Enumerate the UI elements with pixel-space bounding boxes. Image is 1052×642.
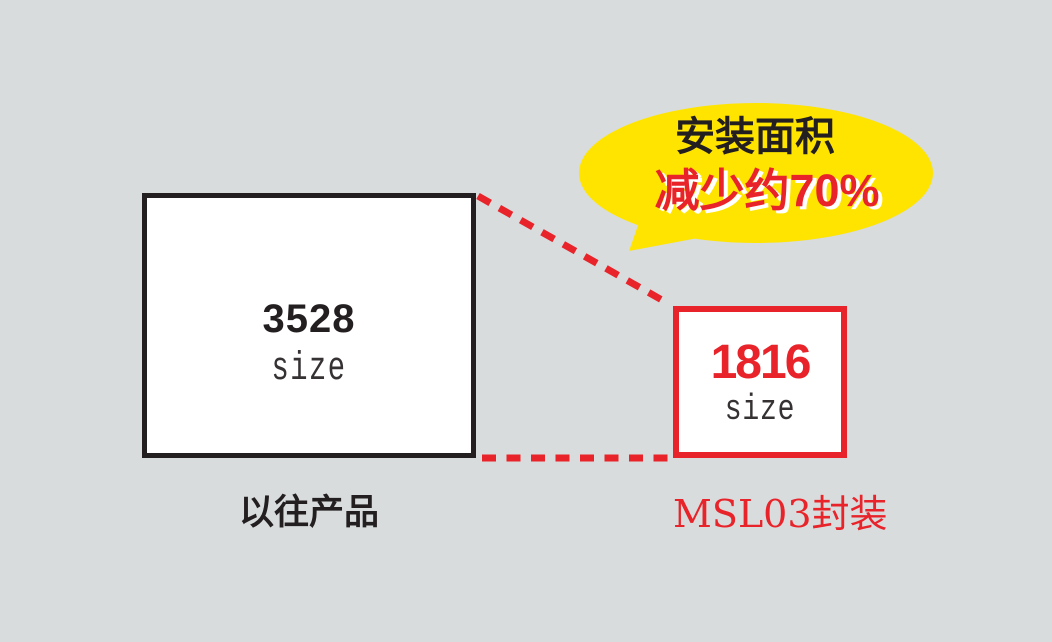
bubble-highlight: 减少约70% [590,168,944,214]
new-package-caption: MSL03封装 [673,483,847,538]
new-package-size-unit: size [692,390,828,430]
old-package-size-unit: size [189,346,429,394]
package-size-comparison-diagram: 3528 size 1816 size 以往产品 MSL03封装 安装面积 减少… [0,0,1052,642]
old-package-size-value: 3528 [142,296,476,342]
bubble-headline: 安装面积 [578,116,932,158]
old-package-caption: 以往产品 [142,484,476,535]
new-package-size-value: 1816 [673,338,847,388]
